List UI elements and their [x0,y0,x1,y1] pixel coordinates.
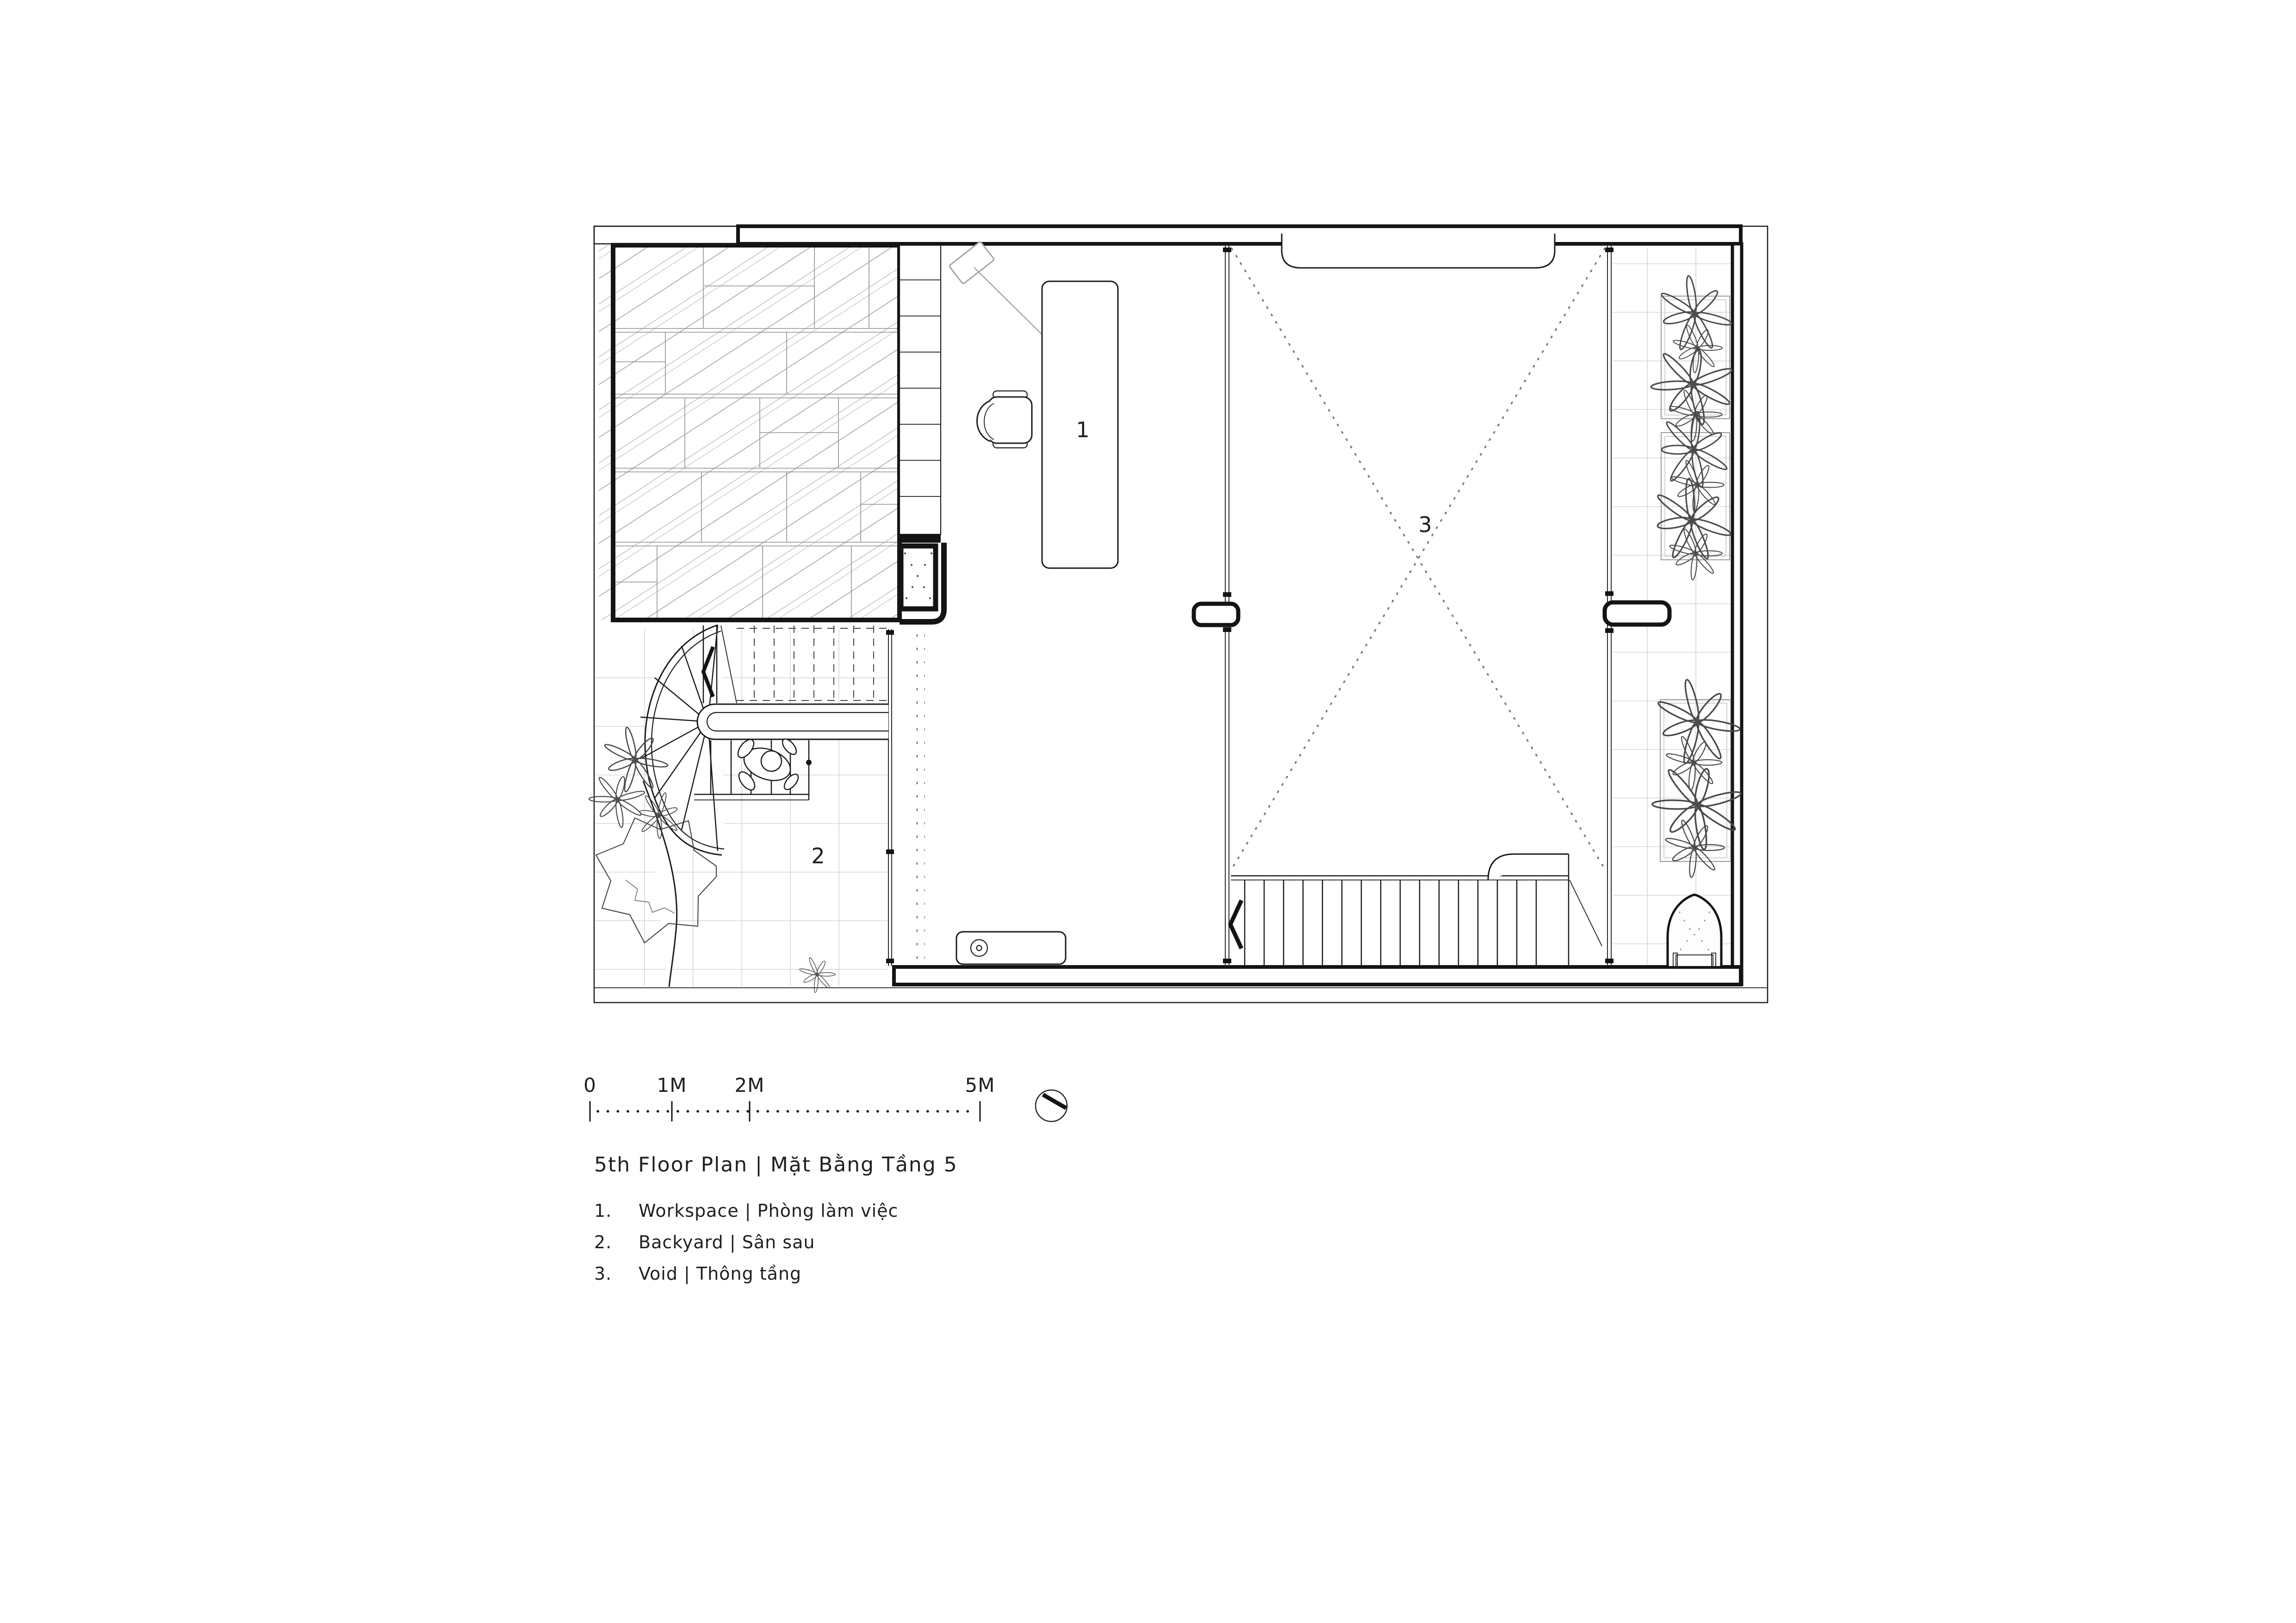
floor-plan-sheet: 1 3 [0,0,2296,1623]
wall-shelving [900,245,941,543]
north-indicator [1036,1090,1067,1121]
top-wall [738,226,1741,244]
skylight-glass-roof [599,245,900,620]
floor-plan-drawing: 1 3 [0,0,2296,1623]
office-chair [977,391,1032,448]
legend-item-number: 2. [594,1232,612,1252]
toilet-niche [1668,895,1721,967]
legend: 1. Workspace | Phòng làm việc 2. Backyar… [594,1201,898,1284]
backyard: 2 [583,625,888,993]
void-area: 3 [1230,234,1605,966]
room-label-workspace: 1 [1076,417,1089,442]
scale-label-1m: 1M [657,1074,687,1096]
glass-partition-backyard [886,629,925,966]
legend-item-label: Backyard | Sân sau [639,1232,815,1253]
bottom-wall [894,967,1741,985]
drawing-title: 5th Floor Plan | Mặt Bằng Tầng 5 [594,1153,958,1177]
stair-flight-upper [703,626,887,703]
scale-label-2m: 2M [735,1074,765,1096]
legend-item-label: Void | Thông tầng [639,1264,801,1284]
scale-label-5m: 5M [965,1074,995,1096]
glass-partition-workspace-void [1194,245,1238,966]
workspace-room: 1 [949,242,1118,964]
void-cross-marks [1232,248,1605,869]
room-label-void: 3 [1418,512,1432,537]
spiral-stair [640,625,888,855]
scale-bar: 0 1M 2M 5M [583,1074,995,1121]
legend-item-number: 1. [594,1201,612,1221]
right-wall [1732,244,1742,985]
stair-break-symbol [1230,900,1241,948]
title-block: 5th Floor Plan | Mặt Bằng Tầng 5 1. Work… [594,1153,958,1284]
scale-label-0: 0 [583,1074,596,1096]
main-stair [1230,854,1602,966]
legend-item-label: Workspace | Phòng làm việc [639,1201,898,1221]
room-label-backyard: 2 [811,843,825,868]
console-unit [956,932,1066,964]
service-shaft [900,543,944,622]
sliding-door-handle-left [1194,604,1238,625]
sliding-door-handle-right [1605,602,1669,625]
void-edge-bench [1282,234,1555,268]
legend-item-number: 3. [594,1264,612,1284]
